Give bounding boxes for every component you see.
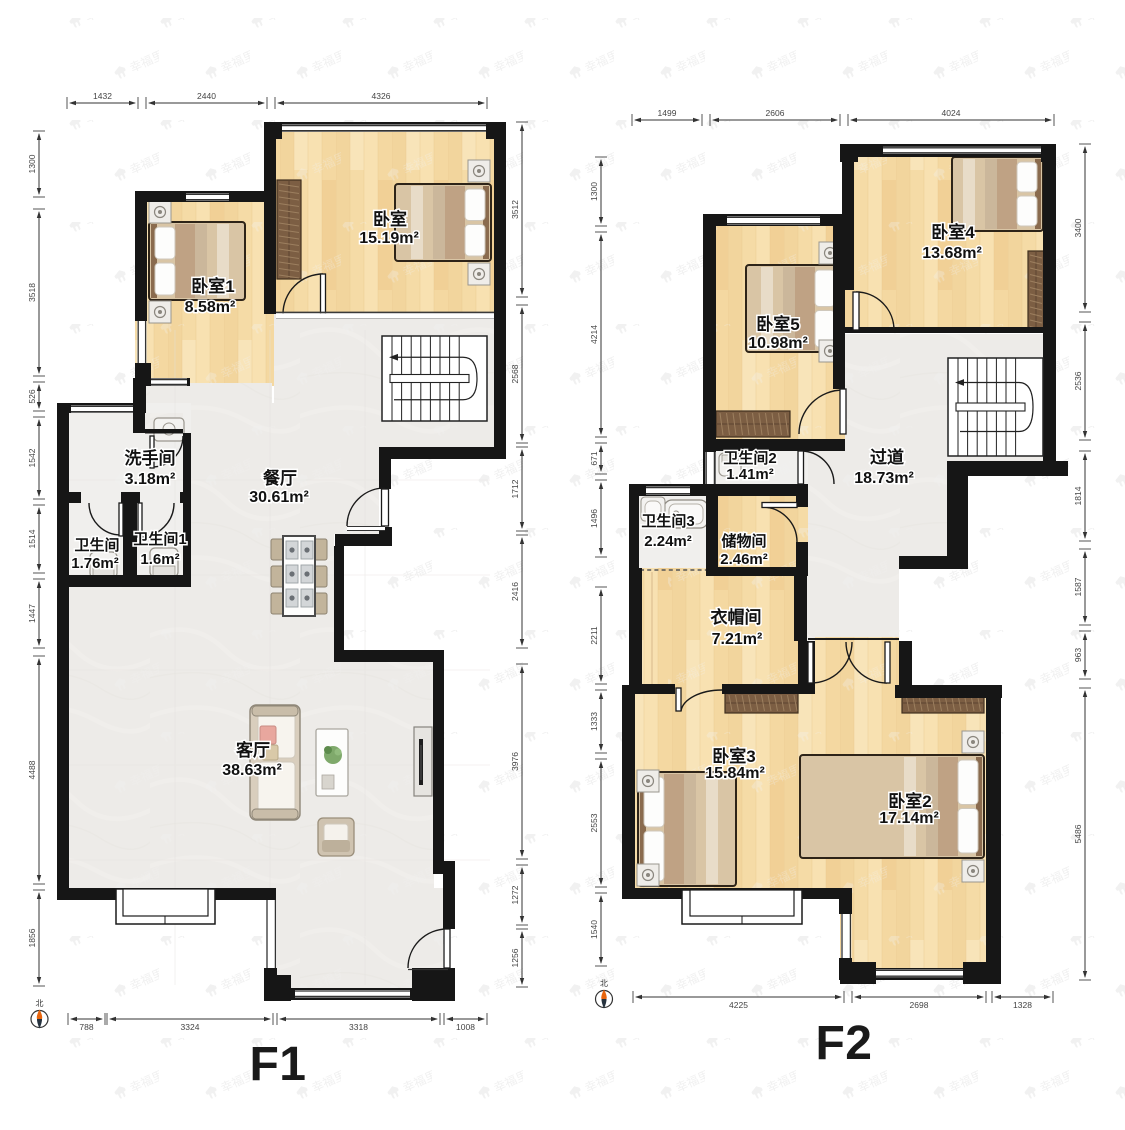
svg-text:2416: 2416 bbox=[510, 582, 520, 601]
svg-text:4225: 4225 bbox=[729, 1000, 748, 1010]
svg-text:4024: 4024 bbox=[942, 108, 961, 118]
svg-text:15.19m²: 15.19m² bbox=[359, 230, 419, 247]
svg-text:卫生间2: 卫生间2 bbox=[723, 449, 776, 467]
svg-text:10.98m²: 10.98m² bbox=[748, 335, 808, 352]
svg-text:671: 671 bbox=[589, 451, 599, 465]
svg-text:1496: 1496 bbox=[589, 509, 599, 528]
svg-text:4326: 4326 bbox=[372, 91, 391, 101]
svg-text:卫生间: 卫生间 bbox=[74, 536, 119, 554]
svg-text:3318: 3318 bbox=[349, 1022, 368, 1032]
svg-text:1540: 1540 bbox=[589, 920, 599, 939]
svg-text:1008: 1008 bbox=[456, 1022, 475, 1032]
svg-text:4488: 4488 bbox=[27, 760, 37, 779]
svg-text:7.21m²: 7.21m² bbox=[712, 631, 763, 648]
svg-text:过道: 过道 bbox=[870, 447, 904, 467]
svg-text:1333: 1333 bbox=[589, 712, 599, 731]
svg-text:1814: 1814 bbox=[1073, 486, 1083, 505]
svg-text:2606: 2606 bbox=[766, 108, 785, 118]
svg-text:2536: 2536 bbox=[1073, 371, 1083, 390]
svg-text:1256: 1256 bbox=[510, 948, 520, 967]
svg-text:788: 788 bbox=[79, 1022, 93, 1032]
svg-text:1300: 1300 bbox=[589, 182, 599, 201]
svg-text:38.63m²: 38.63m² bbox=[222, 762, 282, 779]
svg-text:卧室4: 卧室4 bbox=[931, 222, 975, 242]
svg-text:2553: 2553 bbox=[589, 813, 599, 832]
svg-text:526: 526 bbox=[27, 389, 37, 403]
svg-text:4214: 4214 bbox=[589, 325, 599, 344]
svg-text:卧室1: 卧室1 bbox=[191, 276, 234, 296]
svg-text:F1: F1 bbox=[249, 1038, 306, 1091]
svg-text:卧室5: 卧室5 bbox=[756, 314, 799, 334]
svg-text:卫生间3: 卫生间3 bbox=[641, 512, 694, 530]
svg-text:3512: 3512 bbox=[510, 200, 520, 219]
svg-text:2.24m²: 2.24m² bbox=[644, 533, 692, 550]
svg-text:北: 北 bbox=[600, 979, 608, 988]
svg-text:1272: 1272 bbox=[510, 885, 520, 904]
svg-text:F2: F2 bbox=[815, 1017, 872, 1070]
svg-text:1432: 1432 bbox=[93, 91, 112, 101]
svg-text:2440: 2440 bbox=[197, 91, 216, 101]
svg-text:3518: 3518 bbox=[27, 283, 37, 302]
svg-text:3400: 3400 bbox=[1073, 218, 1083, 237]
svg-text:3976: 3976 bbox=[510, 752, 520, 771]
svg-text:1499: 1499 bbox=[658, 108, 677, 118]
svg-text:储物间: 储物间 bbox=[721, 532, 766, 550]
svg-text:2211: 2211 bbox=[589, 626, 599, 645]
svg-text:1328: 1328 bbox=[1013, 1000, 1032, 1010]
svg-text:2.46m²: 2.46m² bbox=[720, 551, 768, 568]
svg-text:北: 北 bbox=[36, 999, 44, 1008]
svg-text:1.76m²: 1.76m² bbox=[71, 555, 119, 572]
svg-text:卧室3: 卧室3 bbox=[712, 746, 755, 766]
svg-text:13.68m²: 13.68m² bbox=[922, 245, 982, 262]
svg-text:1514: 1514 bbox=[27, 529, 37, 548]
svg-text:30.61m²: 30.61m² bbox=[249, 489, 309, 506]
svg-text:卧室: 卧室 bbox=[373, 209, 407, 229]
svg-text:15.84m²: 15.84m² bbox=[705, 765, 765, 782]
svg-text:1856: 1856 bbox=[27, 928, 37, 947]
svg-text:卫生间1: 卫生间1 bbox=[133, 530, 186, 548]
svg-text:18.73m²: 18.73m² bbox=[854, 470, 914, 487]
svg-text:1300: 1300 bbox=[27, 154, 37, 173]
svg-text:3324: 3324 bbox=[181, 1022, 200, 1032]
svg-text:1447: 1447 bbox=[27, 604, 37, 623]
svg-text:餐厅: 餐厅 bbox=[263, 468, 297, 488]
svg-text:卧室2: 卧室2 bbox=[888, 791, 931, 811]
svg-text:1.41m²: 1.41m² bbox=[726, 466, 774, 483]
svg-text:1542: 1542 bbox=[27, 448, 37, 467]
svg-text:衣帽间: 衣帽间 bbox=[711, 607, 762, 627]
svg-text:8.58m²: 8.58m² bbox=[185, 299, 236, 316]
svg-text:客厅: 客厅 bbox=[235, 740, 270, 760]
svg-text:洗手间: 洗手间 bbox=[125, 448, 176, 468]
svg-text:1.6m²: 1.6m² bbox=[140, 551, 179, 568]
svg-text:963: 963 bbox=[1073, 648, 1083, 662]
svg-text:17.14m²: 17.14m² bbox=[879, 810, 939, 827]
svg-text:1587: 1587 bbox=[1073, 577, 1083, 596]
svg-text:1712: 1712 bbox=[510, 479, 520, 498]
svg-text:2568: 2568 bbox=[510, 364, 520, 383]
svg-text:5486: 5486 bbox=[1073, 824, 1083, 843]
svg-text:2698: 2698 bbox=[910, 1000, 929, 1010]
svg-text:3.18m²: 3.18m² bbox=[125, 471, 176, 488]
